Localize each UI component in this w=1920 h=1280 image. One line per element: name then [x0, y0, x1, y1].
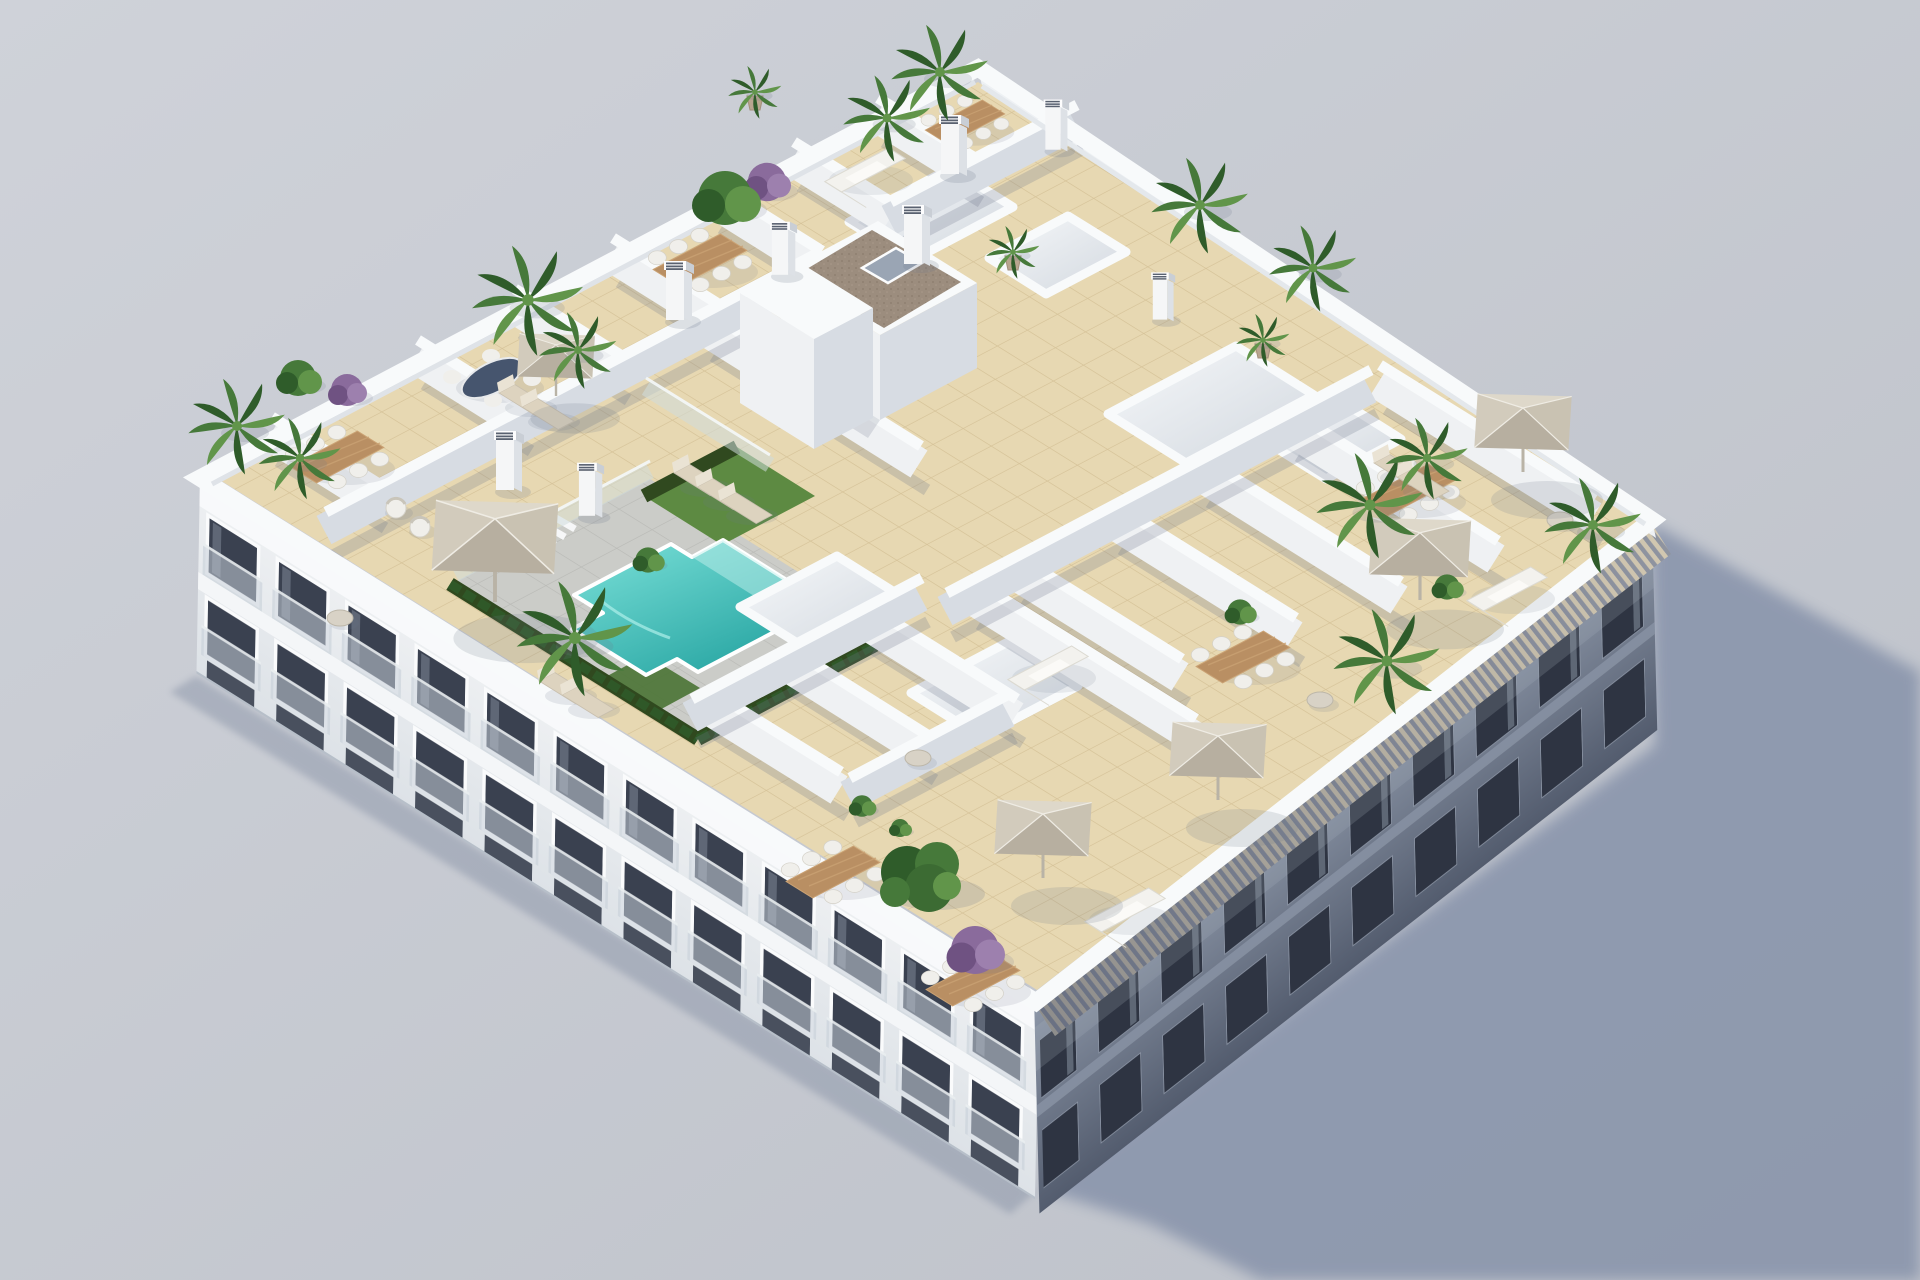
render-canvas [0, 0, 1920, 1280]
aerial-building-render [0, 0, 1920, 1280]
